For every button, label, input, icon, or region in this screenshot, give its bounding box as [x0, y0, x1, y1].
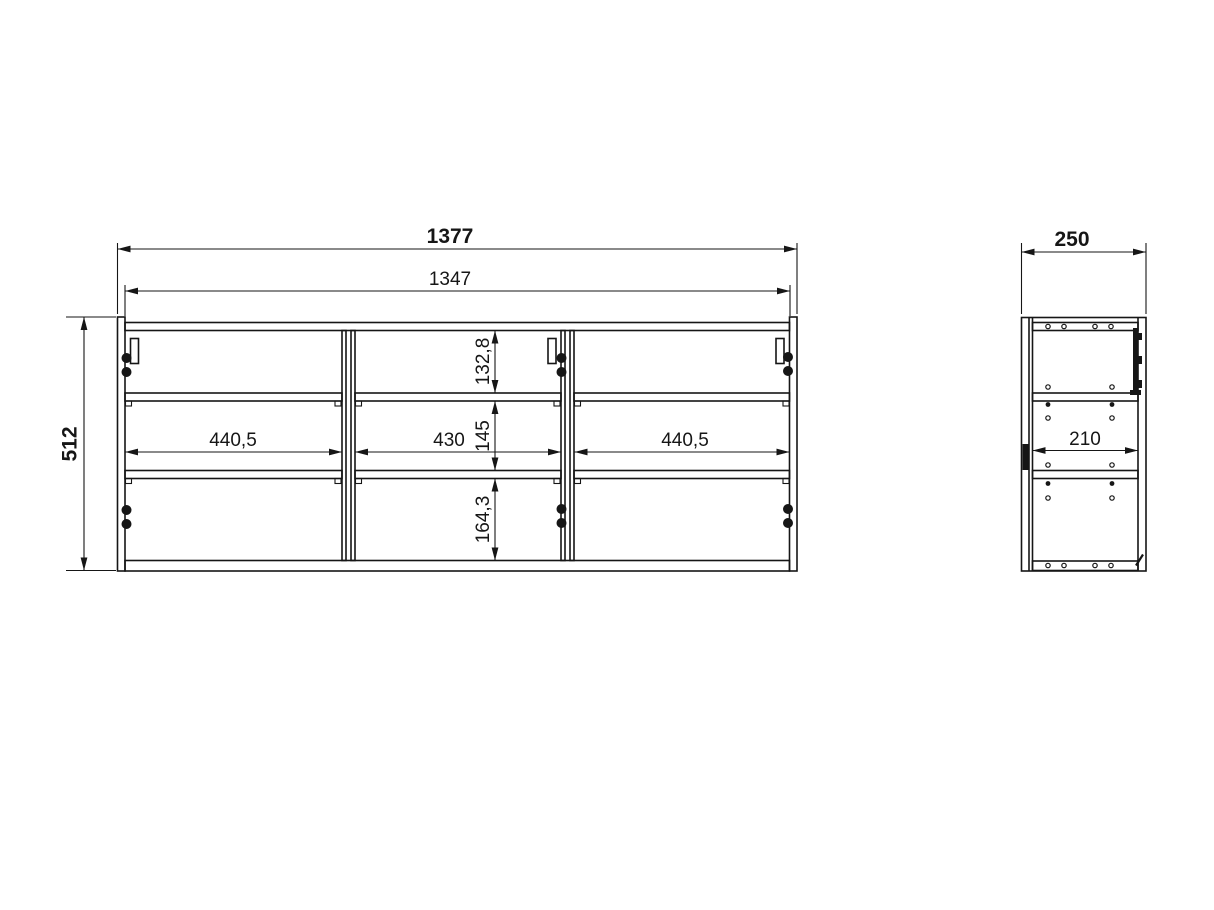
side-view: 250 210	[1022, 228, 1147, 571]
shelf-upper-left	[125, 393, 342, 401]
front-view: 1377 1347 512 440,5	[58, 225, 797, 571]
dim-compartment-middle: 430	[355, 430, 561, 455]
wall-bracket	[1130, 328, 1142, 395]
dim-inner-depth: 210	[1033, 429, 1139, 454]
shelf-lower-left	[125, 471, 342, 479]
dim-overall-height-label: 512	[58, 426, 81, 461]
side-shelf-lower	[1033, 471, 1139, 479]
dim-row-bottom: 164,3	[473, 479, 498, 561]
shelf-lower-right	[574, 471, 790, 479]
shelf-lower-middle	[355, 471, 561, 479]
dim-compartment-middle-label: 430	[433, 430, 465, 451]
dim-compartment-left: 440,5	[125, 430, 342, 455]
dim-row-middle-label: 145	[473, 420, 494, 452]
dim-compartment-right-label: 440,5	[661, 430, 709, 451]
top-panel	[125, 323, 790, 331]
dim-compartment-right: 440,5	[575, 430, 790, 455]
dim-row-top-label: 132,8	[473, 338, 494, 386]
divider-left-a	[342, 331, 346, 561]
dim-inner-width: 1347	[125, 269, 790, 316]
divider-left-b	[351, 331, 355, 561]
dim-row-top: 132,8	[473, 331, 498, 394]
dim-overall-width-label: 1377	[427, 225, 474, 248]
hinge-right-bottom	[783, 504, 793, 528]
dim-compartment-left-label: 440,5	[209, 430, 257, 451]
dim-depth-label: 250	[1054, 228, 1089, 251]
dim-inner-width-label: 1347	[429, 269, 471, 290]
shelf-upper-middle	[355, 393, 561, 401]
drawing-canvas: 1377 1347 512 440,5	[0, 0, 1214, 910]
corner-fitting	[1136, 555, 1143, 566]
divider-right-b	[570, 331, 574, 561]
bottom-panel	[125, 561, 790, 572]
technical-drawing: 1377 1347 512 440,5	[0, 0, 1214, 910]
dim-row-bottom-label: 164,3	[473, 496, 494, 544]
side-door-handle	[1023, 444, 1029, 470]
dim-inner-depth-label: 210	[1069, 429, 1101, 450]
hinge-left-bottom	[122, 505, 132, 529]
door-handle-right	[776, 339, 784, 364]
dim-overall-height: 512	[58, 317, 116, 571]
shelf-upper-right	[574, 393, 790, 401]
side-shelf-upper	[1033, 393, 1139, 401]
dim-row-middle: 145	[473, 401, 498, 471]
door-handle-middle	[548, 339, 556, 364]
dim-depth: 250	[1022, 228, 1147, 314]
door-handle-left	[131, 339, 139, 364]
hinge-left-top	[122, 353, 132, 377]
